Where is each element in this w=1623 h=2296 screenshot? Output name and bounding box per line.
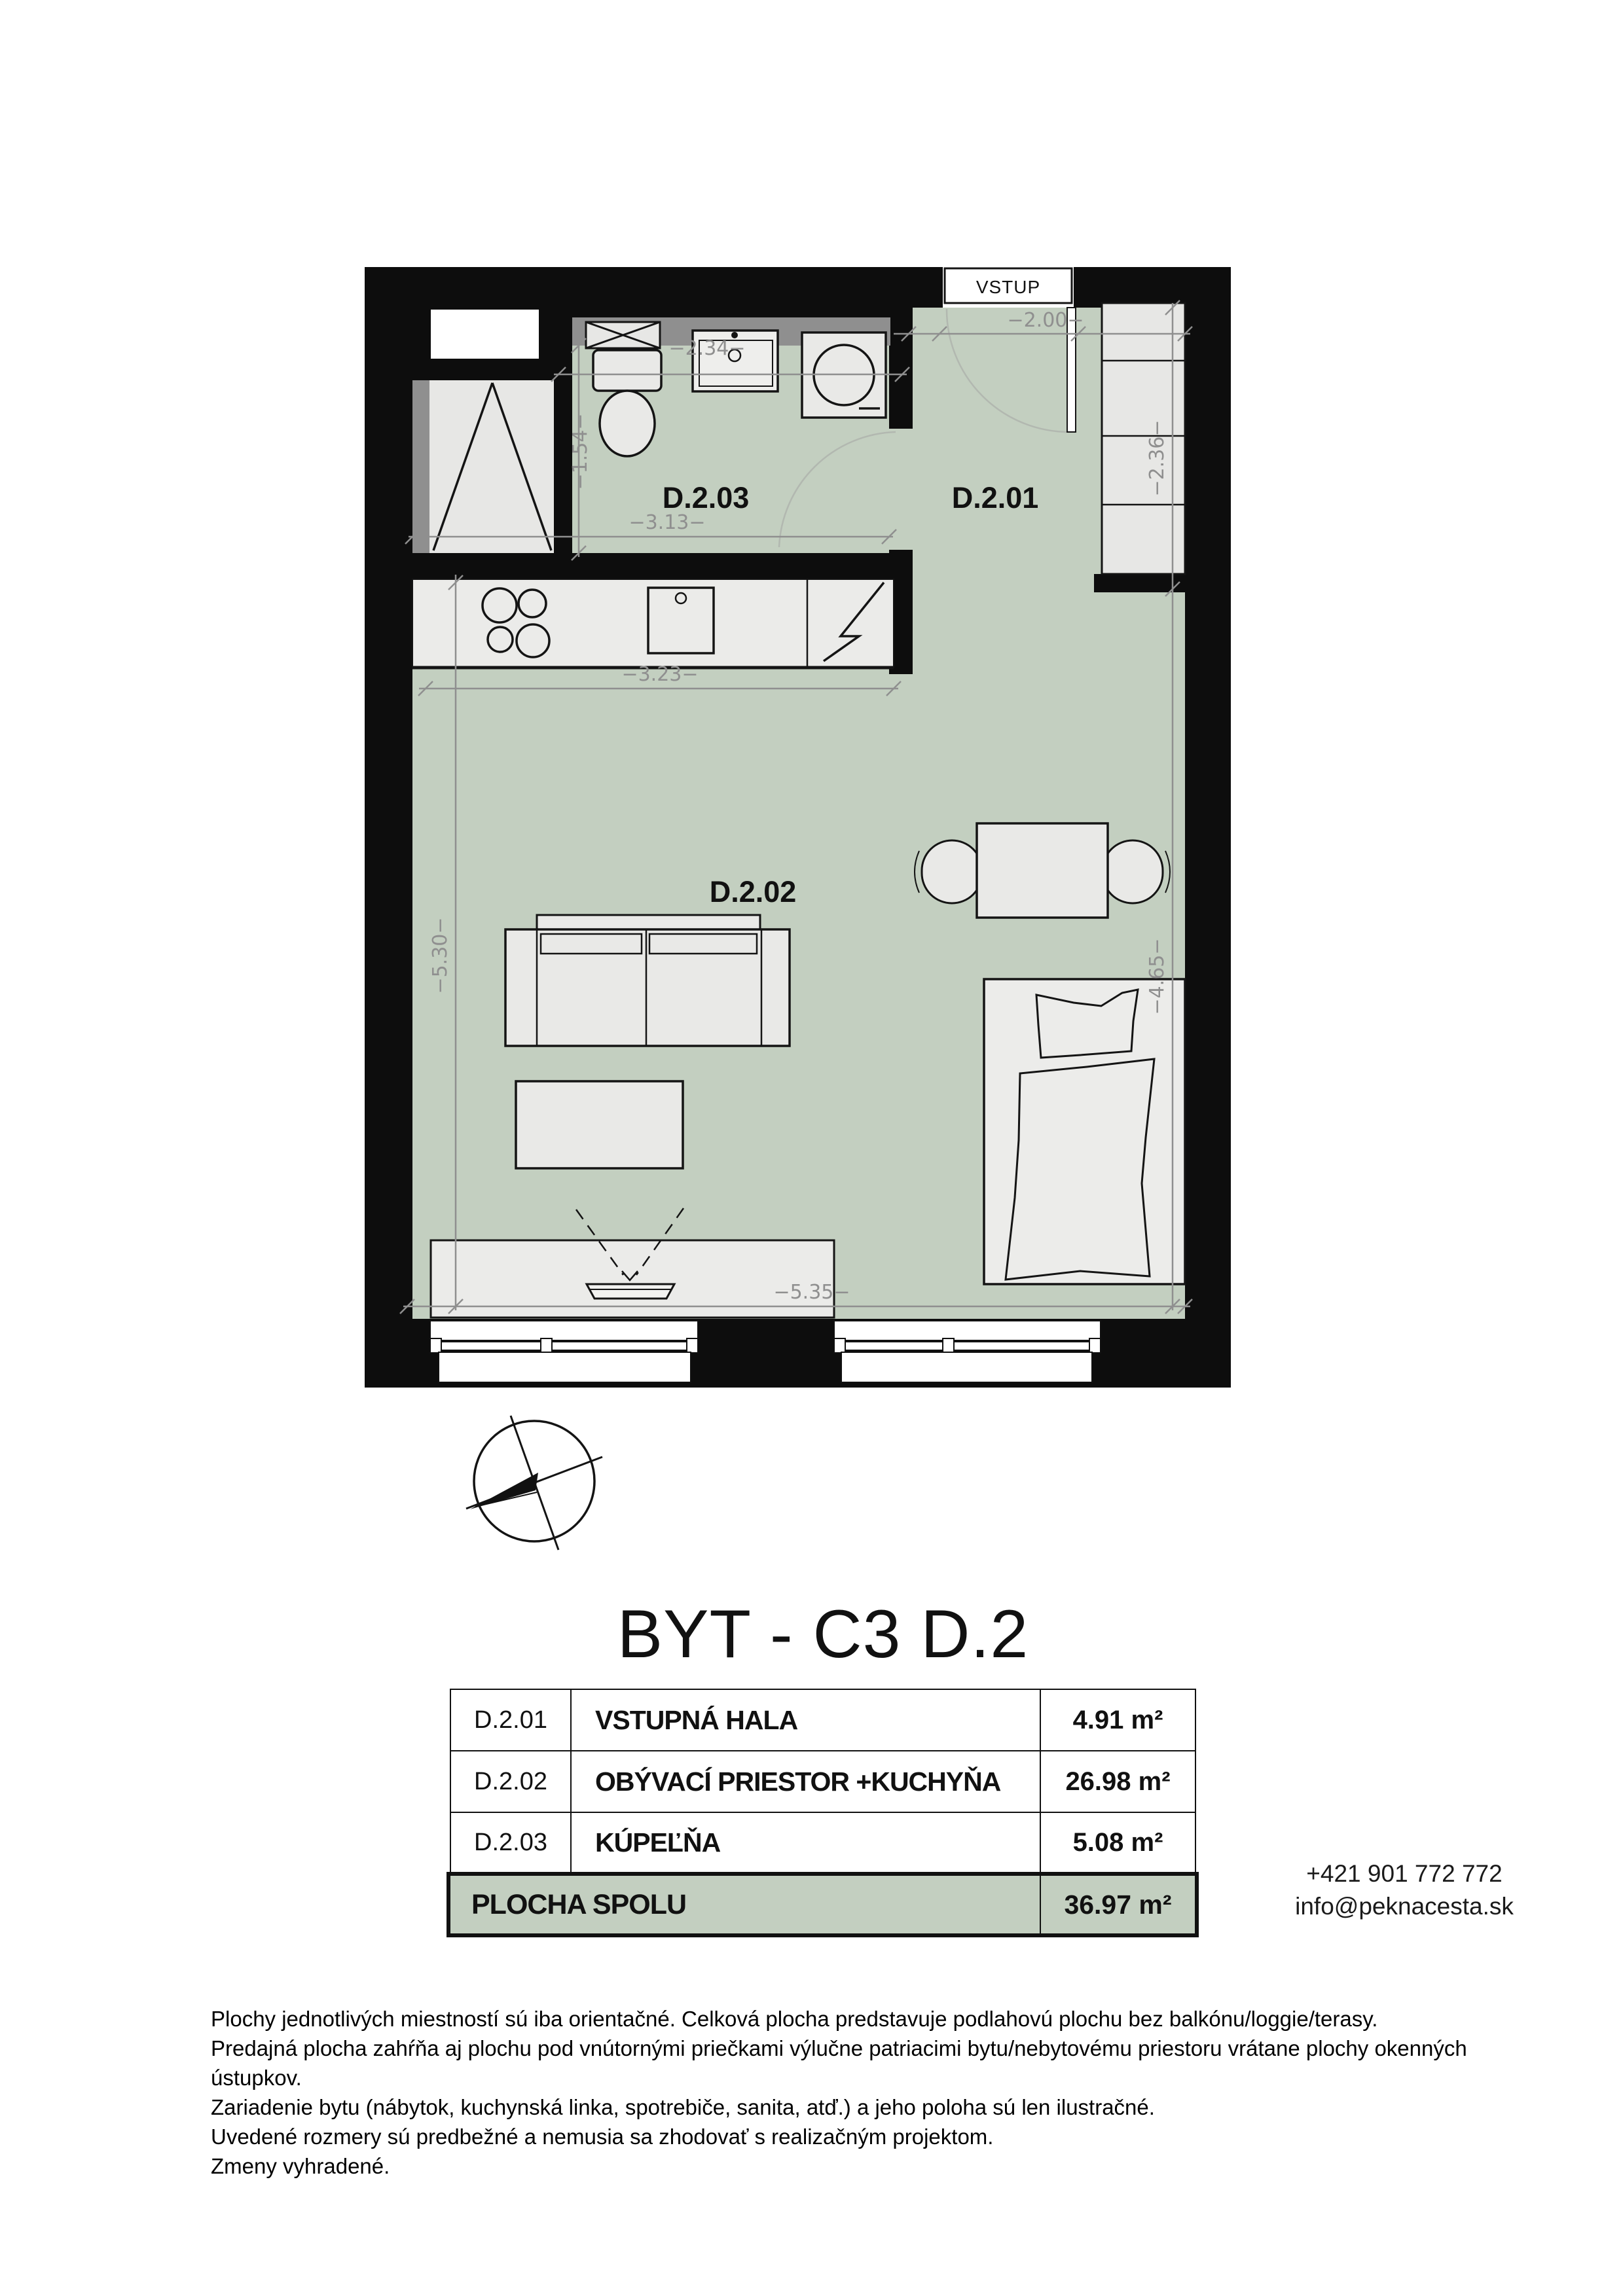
- sofa-cushion: [541, 934, 642, 954]
- window-frame: [430, 1342, 698, 1350]
- window-sill-outer: [841, 1352, 1092, 1382]
- disclaimer-line: Zmeny vyhradené.: [211, 2151, 1507, 2181]
- table-row: D.2.03 KÚPEĽŇA 5.08 m²: [450, 1812, 1196, 1873]
- table-row: D.2.02 OBÝVACÍ PRIESTOR +KUCHYŇA 26.98 m…: [450, 1750, 1196, 1812]
- installation-shaft: [412, 380, 554, 553]
- wall-top-bath: [562, 267, 905, 317]
- window-mullion: [943, 1338, 954, 1353]
- window-right: [834, 1321, 1101, 1382]
- page-title: BYT - C3 D.2: [450, 1596, 1196, 1674]
- total-label: PLOCHA SPOLU: [450, 1876, 1040, 1933]
- disclaimer-line: Uvedené rozmery sú predbežné a nemusia s…: [211, 2122, 1507, 2151]
- compass-needle: [470, 1473, 538, 1509]
- sofa-cushion: [649, 934, 757, 954]
- window-left: [430, 1321, 698, 1382]
- disclaimer-line: Predajná plocha zahŕňa aj plochu pod vnú…: [211, 2034, 1507, 2092]
- room-label-hall: D.2.01: [952, 481, 1039, 514]
- bed: [984, 979, 1185, 1284]
- window-mullion: [834, 1338, 845, 1353]
- sofa: [505, 915, 790, 1046]
- dim-vanity-width: −2.34−: [668, 337, 745, 360]
- room-name: VSTUPNÁ HALA: [570, 1690, 1040, 1750]
- dim-wardrobe-height: −2.36−: [1146, 420, 1169, 496]
- toilet-bowl: [600, 391, 655, 456]
- toilet-tank: [593, 350, 661, 391]
- room-code: D.2.01: [451, 1690, 570, 1750]
- contact-email: info@peknacesta.sk: [1260, 1890, 1548, 1923]
- wall-right: [1185, 267, 1231, 1388]
- wall-bath-bottom: [412, 553, 913, 579]
- dining-table: [977, 823, 1108, 918]
- window-mullion: [687, 1338, 698, 1353]
- tv-icon: [587, 1284, 674, 1299]
- window-mullion: [430, 1338, 441, 1353]
- dim-living-height: −4.65−: [1146, 938, 1169, 1014]
- dining-chair-right: [1103, 840, 1163, 903]
- window-sill-inner: [834, 1321, 1101, 1340]
- wall-left: [365, 267, 412, 1388]
- room-label-bath: D.2.03: [663, 481, 750, 514]
- shaft-strip: [412, 380, 429, 553]
- wall-niche: [431, 310, 539, 359]
- window-sill-inner: [430, 1321, 698, 1340]
- shaft-body: [429, 380, 554, 553]
- entrance-label: VSTUP: [976, 277, 1040, 297]
- coffee-table: [516, 1081, 683, 1168]
- table-row: D.2.01 VSTUPNÁ HALA 4.91 m²: [450, 1689, 1196, 1750]
- window-mullion: [1089, 1338, 1101, 1353]
- floorplan-page: VSTUP: [0, 0, 1623, 2296]
- room-label-living: D.2.02: [710, 875, 797, 908]
- dim-bottom-width: −5.35−: [773, 1281, 850, 1304]
- window-mullion: [541, 1338, 552, 1353]
- window-frame: [834, 1342, 1101, 1350]
- floorplan-drawing: VSTUP: [0, 0, 1623, 2296]
- contact-block: +421 901 772 772 info@peknacesta.sk: [1260, 1857, 1548, 1923]
- disclaimer-line: Plochy jednotlivých miestností sú iba or…: [211, 2004, 1507, 2034]
- washer-box-icon: [586, 322, 660, 348]
- table-total-row: PLOCHA SPOLU 36.97 m²: [447, 1872, 1199, 1937]
- room-code: D.2.02: [451, 1751, 570, 1812]
- dim-left-height: −5.30−: [429, 917, 452, 994]
- area-table: D.2.01 VSTUPNÁ HALA 4.91 m² D.2.02 OBÝVA…: [450, 1689, 1196, 1937]
- room-area: 4.91 m²: [1040, 1690, 1195, 1750]
- dining-chair-left: [922, 840, 982, 903]
- room-name: KÚPEĽŇA: [570, 1813, 1040, 1872]
- bed-duvet: [1006, 1059, 1154, 1280]
- room-name: OBÝVACÍ PRIESTOR +KUCHYŇA: [570, 1751, 1040, 1812]
- contact-phone: +421 901 772 772: [1260, 1857, 1548, 1890]
- kitchen-counter: [412, 579, 894, 668]
- room-code: D.2.03: [451, 1813, 570, 1872]
- wall-hall-stub: [1094, 574, 1231, 592]
- disclaimer-line: Zariadenie bytu (nábytok, kuchynská link…: [211, 2092, 1507, 2122]
- dim-entry-width: −2.00−: [1007, 309, 1084, 332]
- room-area: 5.08 m²: [1040, 1813, 1195, 1872]
- compass-icon: [466, 1416, 602, 1550]
- disclaimer-block: Plochy jednotlivých miestností sú iba or…: [211, 2004, 1507, 2181]
- dim-bath-height: −1.54−: [569, 413, 592, 490]
- room-area: 26.98 m²: [1040, 1751, 1195, 1812]
- dim-kitchen-width: −3.23−: [621, 663, 698, 686]
- wall-top-hall-left: [905, 267, 943, 308]
- dim-bath-width: −3.13−: [629, 511, 705, 534]
- window-sill-outer: [439, 1352, 691, 1382]
- total-area: 36.97 m²: [1040, 1876, 1195, 1933]
